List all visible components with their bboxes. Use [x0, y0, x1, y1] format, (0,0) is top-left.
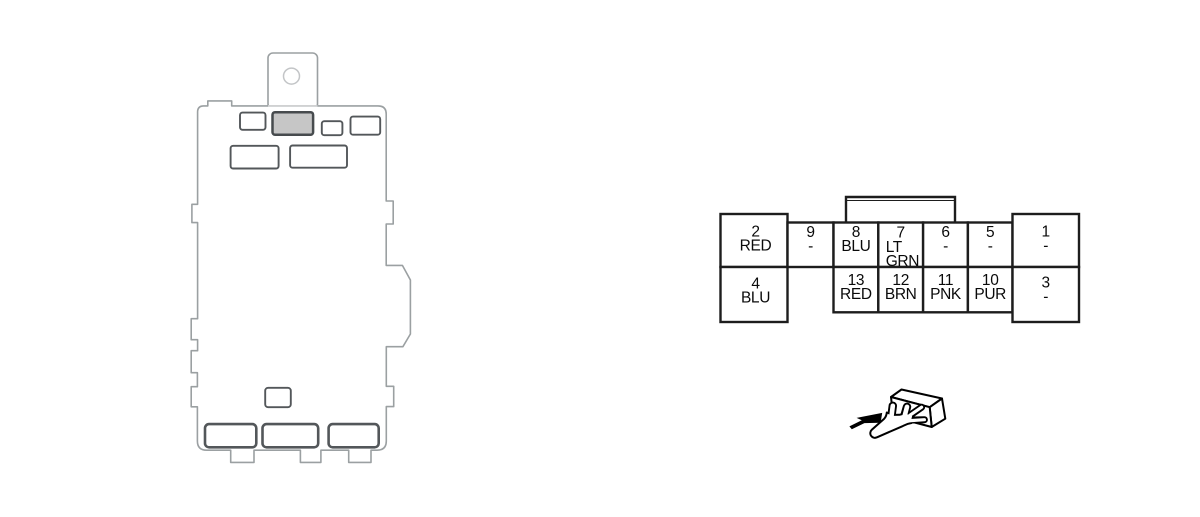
svg-text:RED: RED: [740, 238, 772, 255]
svg-text:-: -: [988, 238, 993, 255]
svg-text:-: -: [1043, 289, 1048, 306]
svg-text:RED: RED: [840, 286, 872, 303]
svg-text:-: -: [1043, 238, 1048, 255]
svg-text:-: -: [808, 238, 813, 255]
svg-text:PUR: PUR: [974, 286, 1006, 303]
svg-text:-: -: [943, 238, 948, 255]
svg-text:BLU: BLU: [741, 290, 770, 307]
svg-text:BRN: BRN: [885, 286, 917, 303]
svg-text:GRN: GRN: [886, 253, 919, 270]
svg-text:PNK: PNK: [930, 286, 962, 303]
svg-text:BLU: BLU: [841, 238, 870, 255]
